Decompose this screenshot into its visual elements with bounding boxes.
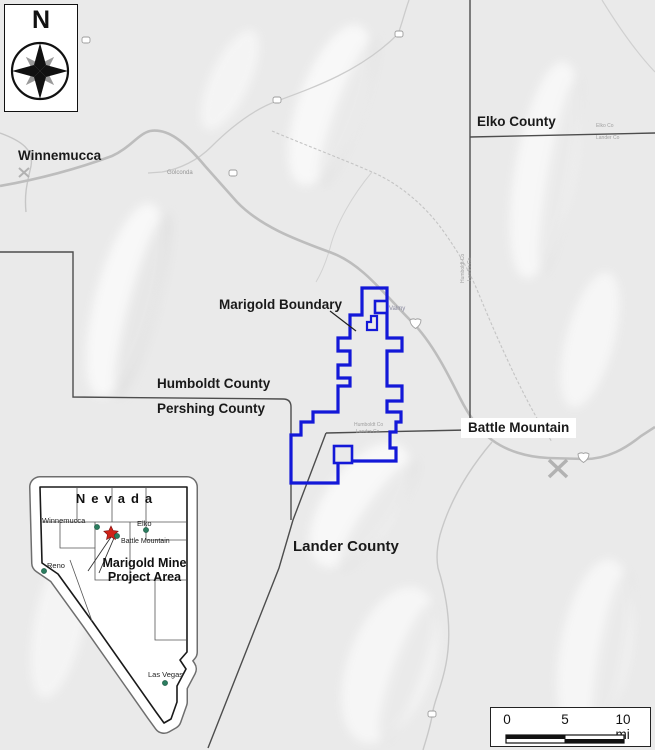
line-label-lander2: Lander Co <box>596 136 619 141</box>
boundary-notch-south <box>334 446 352 463</box>
label-golconda: Golconda <box>167 170 193 176</box>
scale-tick-5: 5 <box>561 712 569 727</box>
boundary-notch-ne <box>375 301 387 313</box>
road-minor-west <box>0 133 31 212</box>
boundary-hole-small <box>367 316 377 330</box>
line-label-humboldt: Humboldt Co <box>354 423 383 428</box>
inset-label-battle-mountain: Battle Mountain <box>121 538 170 545</box>
label-winnemucca: Winnemucca <box>18 148 101 163</box>
label-humboldt-county: Humboldt County <box>157 376 270 391</box>
road-faint-ne <box>602 0 655 72</box>
label-battle-mountain: Battle Mountain <box>461 418 576 438</box>
label-marigold-boundary: Marigold Boundary <box>219 297 342 312</box>
compass-rose-icon <box>5 33 75 109</box>
inset-project-title: Marigold Mine Project Area <box>92 557 197 584</box>
city-dot-reno <box>41 568 46 573</box>
interstate-shield-icon <box>578 453 589 463</box>
label-elko-county: Elko County <box>477 114 556 129</box>
interstate-shield-icon <box>410 319 421 329</box>
route-marker-icon <box>395 31 403 37</box>
inset-label-las-vegas: Las Vegas <box>148 670 183 679</box>
line-label-humboldt-vert: Humboldt Co <box>461 254 466 283</box>
lander-diagonal-line <box>208 433 326 748</box>
inset-label-winnemucca: Winnemucca <box>42 516 85 525</box>
north-arrow-box: N <box>4 4 78 112</box>
scale-bar-graphic <box>505 734 645 746</box>
label-valmy: Valmy <box>389 306 405 312</box>
city-dot-elko <box>143 527 148 532</box>
airport-cross-icon <box>549 460 567 477</box>
route-marker-icon <box>229 170 237 176</box>
map-canvas <box>0 0 655 750</box>
road-faint-branch <box>316 172 372 282</box>
inset-state-label: Nevada <box>52 491 182 506</box>
city-dot-winnemucca <box>94 524 99 529</box>
inset-label-reno: Reno <box>47 561 65 570</box>
north-label: N <box>5 6 77 35</box>
route-marker-icon <box>428 711 436 717</box>
interchange-cross-icon <box>19 168 29 177</box>
route-marker-icon <box>82 37 90 43</box>
label-lander-county: Lander County <box>293 538 399 555</box>
inset-project-title-line1: Marigold Mine <box>92 557 197 571</box>
city-dot-las-vegas <box>162 680 167 685</box>
route-marker-icon <box>273 97 281 103</box>
inset-label-elko: Elko <box>137 519 152 528</box>
line-label-lander: Lander Co <box>356 430 379 435</box>
road-south <box>423 442 492 750</box>
map-figure: N Winnemucca Elko County Marigold Bounda… <box>0 0 655 750</box>
line-label-lander-vert: Lander Co <box>468 258 473 281</box>
line-label-elko: Elko Co <box>596 124 614 129</box>
label-pershing-county: Pershing County <box>157 401 265 416</box>
city-dot-battle-mountain <box>114 533 119 538</box>
inset-project-title-line2: Project Area <box>92 571 197 585</box>
scale-tick-0: 0 <box>503 712 511 727</box>
scale-bar: 0 5 10 mi <box>490 707 651 747</box>
